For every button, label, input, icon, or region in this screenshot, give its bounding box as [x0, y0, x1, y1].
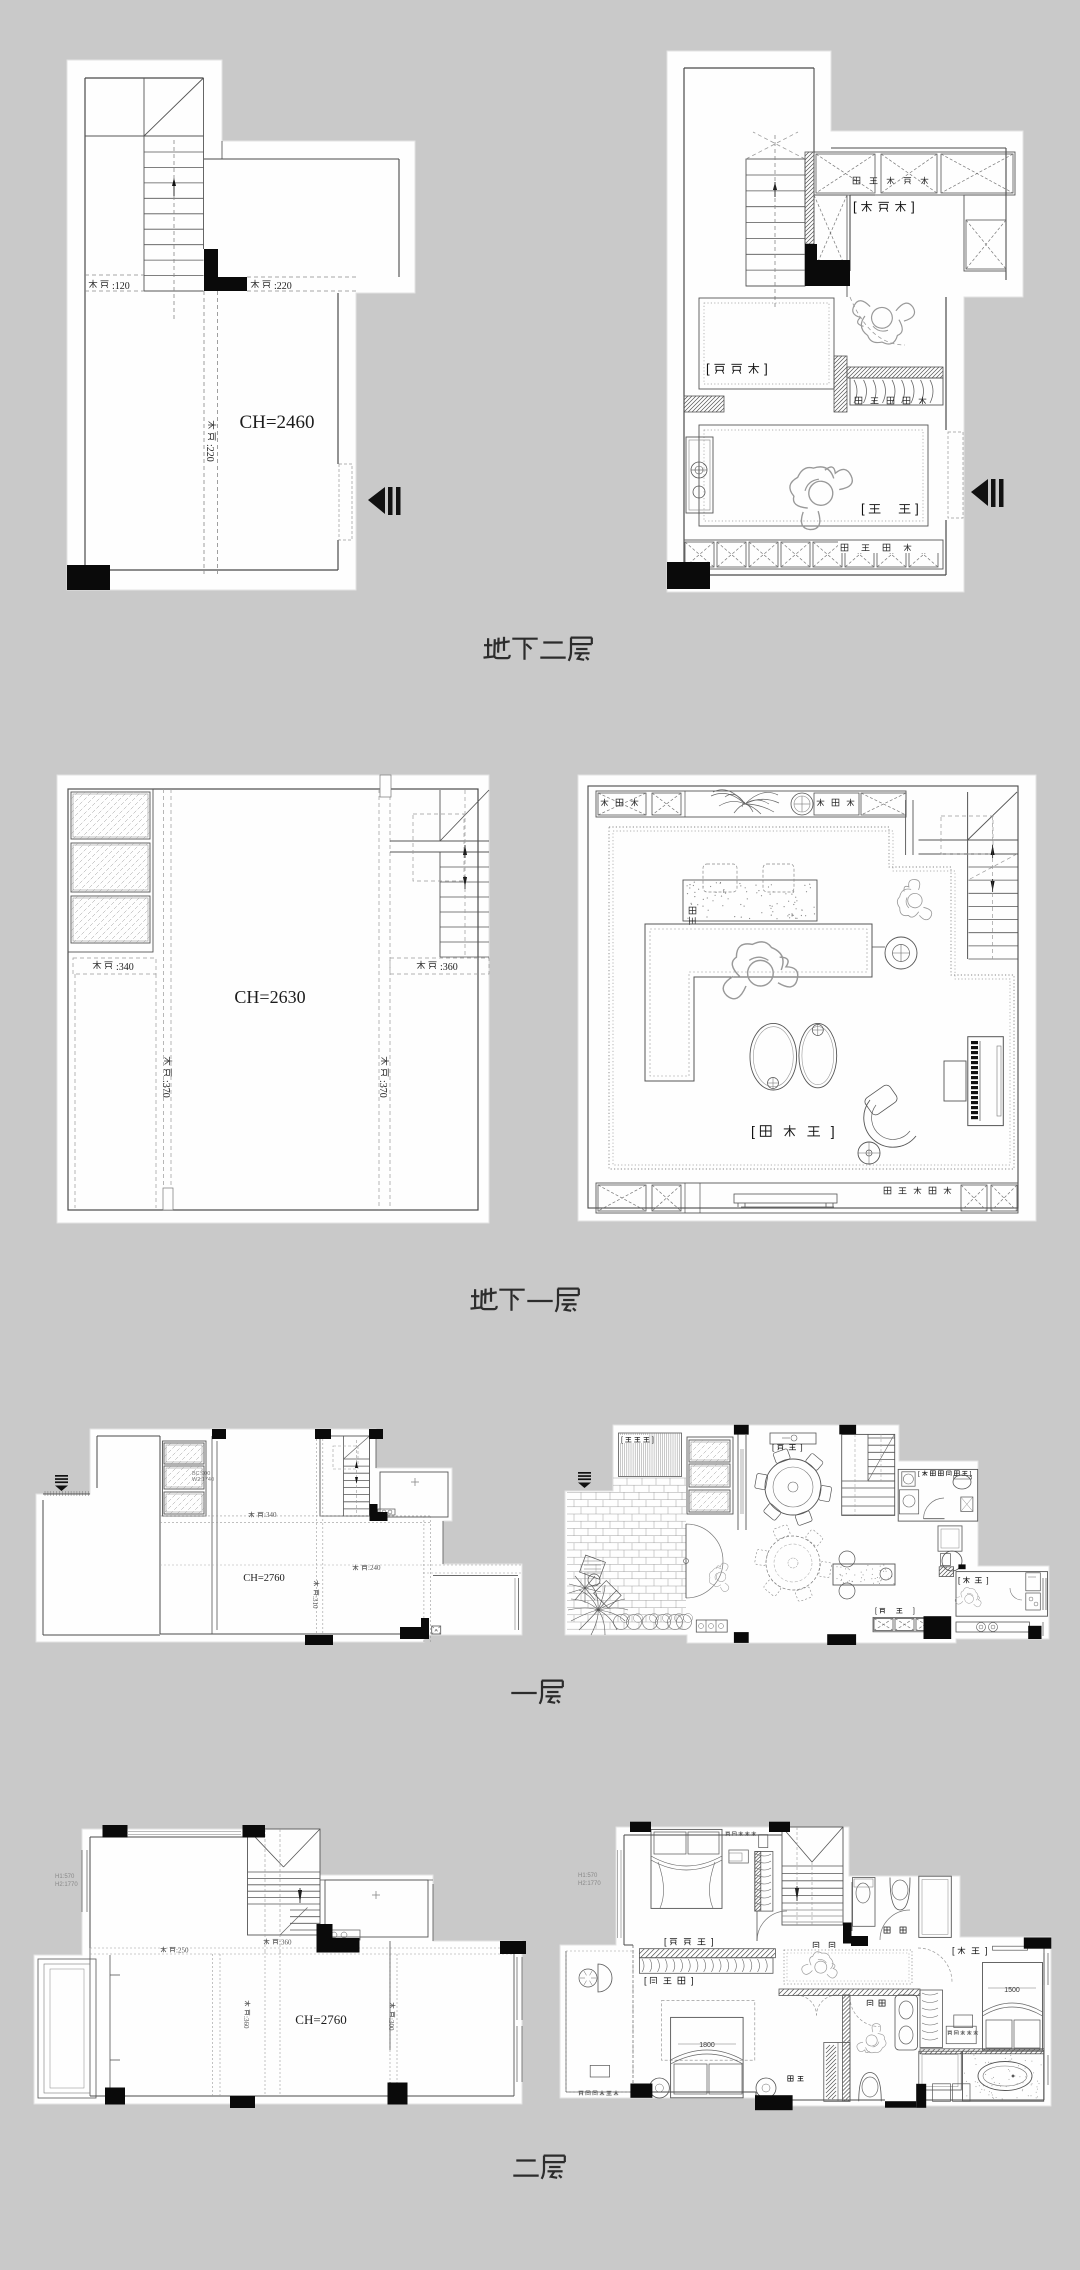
- svg-text:]: ]: [691, 1976, 694, 1986]
- svg-text:]: ]: [911, 199, 915, 214]
- svg-text:]: ]: [831, 1123, 835, 1139]
- svg-text:[: [: [875, 1608, 877, 1615]
- svg-text:]: ]: [915, 501, 919, 516]
- svg-text:H2:1770: H2:1770: [578, 1881, 601, 1887]
- svg-text:[: [: [706, 361, 710, 376]
- svg-text:]: ]: [970, 1471, 972, 1478]
- svg-text:]: ]: [800, 1443, 802, 1452]
- svg-text::340: :340: [116, 962, 134, 973]
- svg-text::220: :220: [274, 281, 292, 292]
- svg-text::120: :120: [112, 281, 130, 292]
- svg-text:]: ]: [986, 1576, 988, 1585]
- svg-text::360: :360: [279, 1939, 292, 1947]
- svg-text:H2:1770: H2:1770: [55, 1882, 78, 1888]
- svg-text:[: [: [918, 1471, 920, 1478]
- svg-text::240: :240: [368, 1564, 381, 1572]
- svg-text:]: ]: [913, 1608, 915, 1615]
- svg-text:H1:570: H1:570: [55, 1874, 75, 1880]
- svg-text:W2:1740: W2:1740: [192, 1477, 214, 1483]
- svg-text:CH=2760: CH=2760: [243, 1573, 285, 1584]
- svg-text::360: :360: [440, 962, 458, 973]
- svg-text::300: :300: [387, 2018, 395, 2031]
- svg-text:CH=2630: CH=2630: [234, 987, 305, 1007]
- svg-text:[: [: [861, 501, 865, 516]
- svg-text:H1:570: H1:570: [578, 1873, 598, 1879]
- svg-text::360: :360: [242, 2016, 250, 2029]
- svg-text::250: :250: [176, 1947, 189, 1955]
- svg-text::310: :310: [311, 1596, 319, 1609]
- svg-text:CH=2460: CH=2460: [239, 412, 314, 433]
- svg-text::220: :220: [204, 444, 215, 462]
- svg-text:[: [: [621, 1437, 623, 1444]
- svg-text:1800: 1800: [699, 2042, 715, 2049]
- svg-text::370: :370: [377, 1080, 388, 1098]
- svg-text:[: [: [853, 199, 857, 214]
- svg-text:]: ]: [764, 361, 768, 376]
- svg-text:CH=2760: CH=2760: [295, 2012, 346, 2027]
- svg-text::370: :370: [160, 1080, 171, 1098]
- svg-text:]: ]: [711, 1937, 714, 1947]
- svg-text:[: [: [751, 1123, 755, 1139]
- svg-text:]: ]: [652, 1437, 654, 1444]
- svg-text::340: :340: [264, 1511, 277, 1519]
- svg-text:]: ]: [985, 1946, 988, 1956]
